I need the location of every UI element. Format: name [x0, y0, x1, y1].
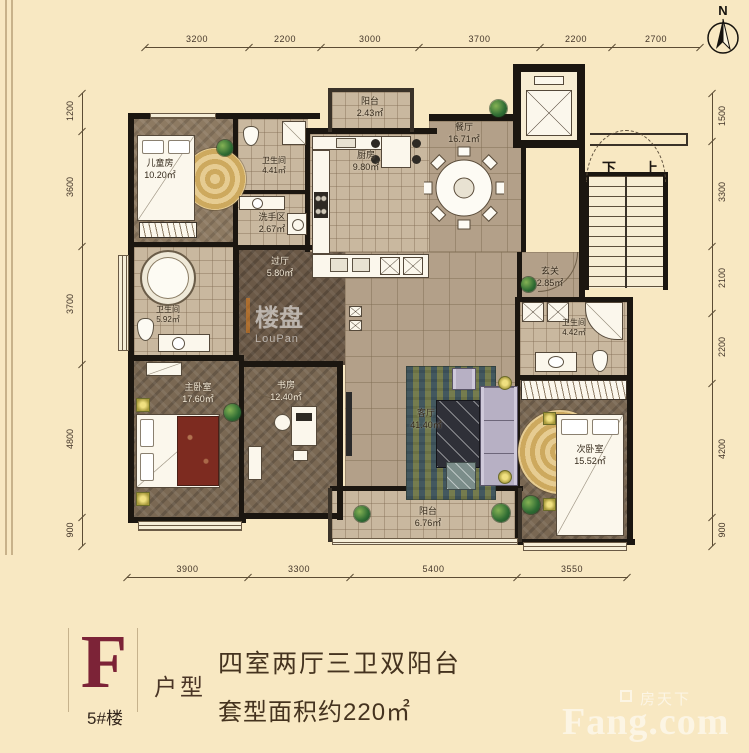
divider — [68, 628, 69, 712]
desk-chair — [274, 414, 291, 431]
dim-label: 1500 — [717, 94, 727, 138]
dim-label: 4200 — [717, 427, 727, 471]
floor-lamp — [498, 376, 512, 390]
wall-segment — [429, 114, 525, 121]
armchair — [452, 368, 476, 390]
pillow — [561, 419, 588, 435]
landing-line — [686, 133, 688, 146]
shower — [282, 121, 306, 145]
room-label-dining: 餐厅16.71㎡ — [436, 122, 492, 145]
dim-label: 3300 — [248, 564, 350, 574]
dim-label: 3000 — [321, 34, 419, 44]
sofa — [480, 386, 518, 486]
type-label: 户型 — [154, 668, 206, 702]
balcony-rail — [518, 488, 522, 542]
plant — [490, 100, 507, 117]
kitchen-sink — [352, 258, 370, 272]
frame-line — [11, 0, 13, 555]
unit-type-letter: F — [74, 624, 134, 700]
chair — [412, 139, 421, 148]
nightstand-lamp — [136, 398, 150, 412]
bay-window — [118, 255, 129, 351]
area-description: 套型面积约220㎡ — [218, 692, 411, 727]
monitor — [296, 413, 312, 421]
room-label-study: 书房12.40㎡ — [258, 380, 314, 403]
room-label-master-bath: 卫生间5.92㎡ — [142, 305, 194, 326]
window — [150, 113, 216, 119]
room-label-kitchen: 厨房9.80㎡ — [338, 150, 394, 173]
plant — [217, 140, 233, 156]
wall-segment — [235, 190, 307, 194]
chair — [412, 155, 421, 164]
room-label-children: 儿童房10.20㎡ — [132, 158, 188, 181]
balcony-rail — [328, 88, 414, 92]
svg-text:N: N — [718, 3, 727, 18]
dim-label: 3550 — [517, 564, 627, 574]
dim-label: 2700 — [612, 34, 700, 44]
room-label-living: 客厅41.40㎡ — [398, 408, 454, 431]
stair-up-label: 上 — [644, 158, 658, 178]
desk — [291, 406, 317, 446]
wall-segment — [128, 355, 244, 361]
dim-line-left — [82, 93, 83, 546]
room-label-entry: 玄关2.85㎡ — [522, 266, 578, 289]
wall-segment — [517, 375, 629, 380]
room-label-second-bedroom: 次卧室15.52㎡ — [560, 444, 620, 467]
wall-segment — [663, 172, 668, 290]
elevator-shaft — [513, 64, 585, 148]
dim-label: 3700 — [419, 34, 540, 44]
room-label-bath-right: 卫生间4.42㎡ — [548, 318, 600, 339]
blanket — [177, 416, 219, 486]
plant — [522, 496, 540, 514]
dim-line-bottom — [127, 577, 628, 578]
plant — [492, 504, 510, 522]
chair — [371, 139, 380, 148]
basin — [252, 198, 263, 209]
room-label-balcony-bottom: 阳台6.76㎡ — [400, 506, 456, 529]
elevator-cab — [526, 90, 572, 136]
wall-segment — [239, 361, 244, 520]
balcony-rail — [328, 88, 332, 132]
nightstand-lamp — [543, 498, 556, 511]
room-label-wash: 洗手区2.67㎡ — [244, 212, 300, 235]
cabinet — [522, 302, 544, 322]
building-number: 5#楼 — [70, 704, 140, 729]
pillow — [592, 419, 619, 435]
nightstand-lamp — [136, 492, 150, 506]
tv-stand — [146, 362, 182, 376]
dim-label: 3900 — [127, 564, 248, 574]
side-table — [446, 462, 476, 490]
wall-segment — [305, 128, 437, 134]
floorplan-page: 3200 2200 3000 3700 2200 2700 3900 3300 … — [0, 0, 749, 753]
pillow — [140, 419, 154, 447]
stair-rail — [625, 176, 627, 288]
room-label-bath-top: 卫生间4.41㎡ — [248, 156, 300, 177]
kitchen-sink — [330, 258, 348, 272]
pillow — [142, 140, 164, 154]
electrical-box — [349, 306, 362, 317]
dim-label: 2200 — [249, 34, 321, 44]
wall-segment — [584, 172, 589, 290]
nightstand-lamp — [543, 412, 556, 425]
electrical-box — [349, 320, 362, 331]
printer — [293, 450, 308, 461]
tv — [346, 392, 352, 456]
dim-label: 4800 — [65, 417, 75, 461]
plan-watermark: 楼盘 LouPan — [246, 298, 336, 345]
dim-label: 2200 — [717, 325, 727, 369]
basin — [548, 356, 564, 368]
layout-description: 四室两厅三卫双阳台 — [218, 644, 461, 680]
dim-label: 3700 — [65, 282, 75, 326]
dining-table-set — [424, 146, 504, 230]
kitchen-cabinet — [403, 257, 423, 275]
room-label-hall: 过厅5.80㎡ — [252, 256, 308, 279]
bed-second — [556, 414, 624, 536]
pillow — [140, 453, 154, 481]
basin — [172, 337, 185, 350]
brand-en: Fang.com — [562, 700, 729, 744]
wall-segment — [233, 245, 313, 250]
kitchen-sink — [336, 138, 356, 148]
wall-segment — [627, 297, 633, 544]
wall-segment — [128, 242, 238, 247]
room-label-master-bedroom: 主卧室17.60㎡ — [168, 382, 228, 405]
wall-segment — [233, 247, 239, 357]
bay-window — [138, 521, 242, 531]
dim-label: 900 — [717, 508, 727, 552]
dim-label: 3300 — [717, 170, 727, 214]
divider — [137, 628, 138, 712]
floor-lamp — [498, 470, 512, 484]
dim-label: 900 — [65, 508, 75, 552]
north-compass-icon: N — [700, 2, 746, 60]
bed-master — [136, 414, 220, 488]
dim-label: 2200 — [540, 34, 612, 44]
frame-line — [5, 0, 7, 555]
balcony-rail — [328, 488, 332, 542]
dim-line-top — [145, 47, 700, 48]
elevator-counterweight — [534, 76, 564, 85]
stair-down-label: 下 — [602, 158, 616, 178]
room-label-balcony-top: 阳台2.43㎡ — [342, 96, 398, 119]
pillow — [168, 140, 190, 154]
dim-label: 3200 — [145, 34, 249, 44]
bay-window — [523, 542, 627, 551]
plant — [354, 506, 370, 522]
plant — [224, 404, 241, 421]
balcony-rail — [332, 538, 518, 545]
round-bathtub — [140, 250, 196, 306]
dim-label: 3600 — [65, 165, 75, 209]
wall-segment — [337, 365, 343, 520]
wardrobe — [139, 222, 197, 238]
dim-label: 5400 — [350, 564, 517, 574]
dim-line-right — [712, 93, 713, 546]
bookcase — [248, 446, 262, 480]
stove — [314, 192, 328, 218]
kitchen-cabinet — [380, 257, 400, 275]
closet — [521, 380, 627, 400]
dim-label: 2100 — [717, 256, 727, 300]
dim-label: 1200 — [65, 89, 75, 133]
balcony-rail — [410, 88, 414, 132]
